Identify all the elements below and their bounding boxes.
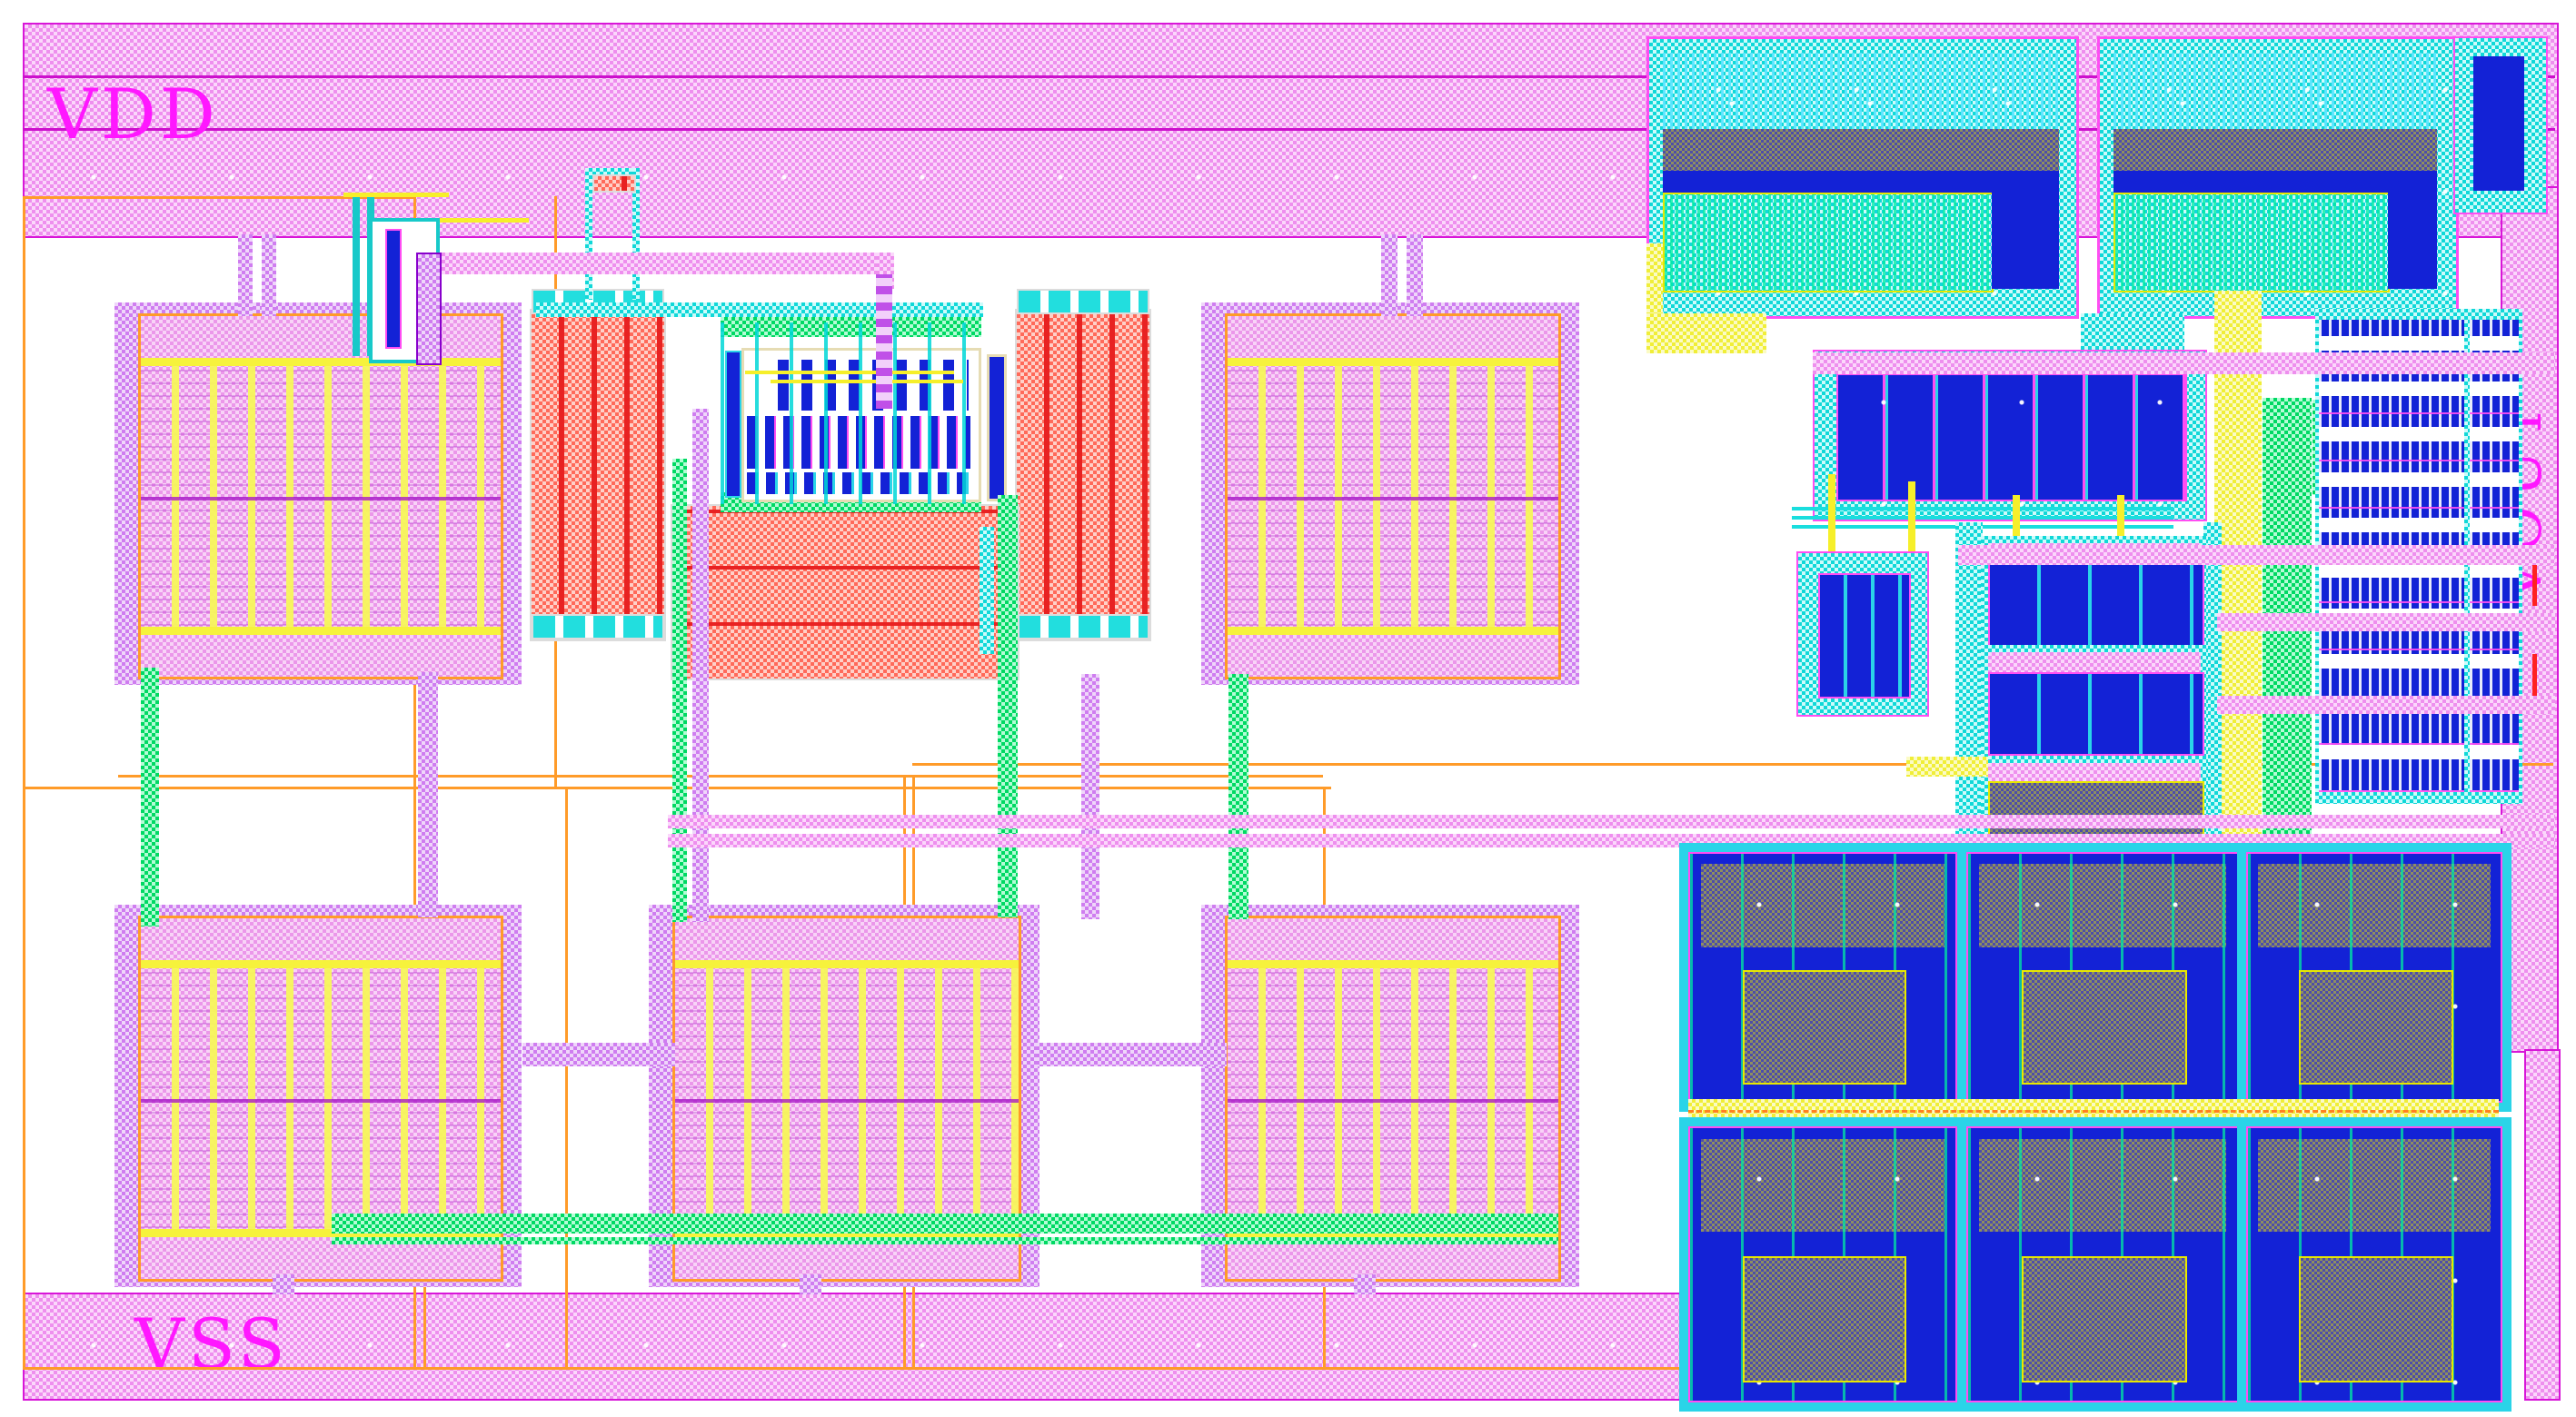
resistor-contacts [532,614,664,639]
metal-wire [418,672,438,917]
cap-cell-lines [1690,854,1955,1101]
corner-diffusion [2473,56,2524,191]
cap-top-plate [2114,53,2437,129]
diffusion-bar [725,351,741,498]
pmos-array-top-left [138,313,503,679]
cap-cell [2246,852,2502,1103]
poly-wire [1906,757,1988,777]
resistor-contacts [1017,614,1149,639]
grid-separator-line [1688,1110,2499,1113]
gate-wire [1228,674,1248,919]
metal-bus [2217,696,2555,714]
well-outline [565,787,568,1370]
cap-cell [2246,1126,2502,1402]
cap-strap [1988,652,2201,672]
cap-overlap [2114,193,2390,292]
source-strap [1228,316,1558,366]
cap-row-wide [1813,350,2207,521]
vss-stub [800,1274,821,1294]
cap-bottom-plate [1992,193,2059,289]
cap-overlap [1663,129,2059,171]
diffusion-bar [385,229,402,349]
poly-wire [745,371,954,374]
cap-cell-lines [2248,1128,2501,1401]
row-divider [141,497,501,500]
gate-wire [672,459,687,922]
vdd-stub [262,234,276,316]
gate-wire [998,495,1018,917]
metal-bus [1958,545,2555,565]
cap-cell [1688,852,1957,1103]
cap-cell [1966,852,2239,1103]
poly-resistor-horizontal [671,504,1019,680]
vss-stub [273,1274,294,1294]
small-frame [585,168,592,300]
cap-bottom-plate [1663,171,2059,193]
vss-stub [1354,1274,1376,1294]
cap-cell-lines [1690,1128,1955,1401]
source-strap [141,918,501,968]
row-divider [675,1099,1019,1103]
source-strap [141,627,501,677]
poly-wire [343,193,449,197]
metal-triple-line [1792,507,2173,510]
cap-panels [1988,563,2204,647]
cap-panels [1836,373,2187,501]
source-strap [141,316,501,366]
layout-canvas[interactable]: VDD VSS VOUT [0,0,2576,1417]
metal-bus [1813,352,2555,374]
row-divider [1228,1099,1558,1103]
cap-cell-lines [1968,1128,2237,1401]
row-divider [141,1099,501,1103]
cap-cell-lines [1968,854,2237,1101]
poly-riser [876,274,892,409]
cap-strap [1988,763,2201,781]
cap-bottom-plate [2114,171,2437,193]
metal-wire [1081,674,1099,919]
metal-triple-line [1792,516,2173,520]
source-strap [675,918,1019,968]
cap-cell-lines [2248,854,2501,1101]
metal-wire [536,302,983,317]
well-outline [23,196,25,1370]
poly-wire [771,380,963,383]
source-strap [1228,918,1558,968]
source-strap [1228,627,1558,677]
gate-bus-bottom [332,1214,1558,1234]
cap-bottom-plate [2388,193,2437,289]
row-divider [1228,497,1558,500]
metal-wire [416,253,892,274]
well-outline [23,1367,1688,1370]
gate-bus-bottom [332,1237,1558,1244]
cap-panels [1818,573,1911,699]
cap-overlap [2114,129,2437,171]
cap-small [1796,551,1929,717]
cap-cell [1966,1126,2239,1402]
poly-resistor-right [1015,309,1151,641]
resistor-tap [980,527,994,654]
poly-cap [592,174,636,193]
cap-cell [1688,1126,1957,1402]
poly-resistor-left [530,309,666,641]
poly-strap [1646,313,1766,353]
vdd-stub [1381,234,1397,316]
cap-panels [1988,672,2204,756]
metal-wire [416,253,442,365]
cap-overlap [1663,193,1994,292]
resistor-contacts [1017,289,1149,314]
metal-rail [1955,522,1983,860]
metal-triple-line [1792,525,2173,529]
vdd-stub [1407,234,1423,316]
metal-bus [668,834,2555,847]
gate-wire [141,668,159,926]
diffusion-bar [987,354,1007,501]
pmos-array-top-right [1225,313,1561,679]
cap-row [1981,645,2208,759]
cap-top-plate [1663,53,2059,129]
vdd-label: VDD [47,80,219,149]
metal-connector [2081,313,2184,350]
metal-wire [522,1043,675,1066]
metal-bus [2217,613,2555,631]
metal-wire [1036,1043,1227,1066]
metal-bus [668,815,2555,828]
grid-separator [1688,1099,2499,1126]
routing-verticals [721,322,981,504]
vdd-stub [238,234,253,316]
well-outline [118,775,1323,778]
metal-wire [353,196,360,356]
vout-rail-lower [2524,1049,2561,1401]
